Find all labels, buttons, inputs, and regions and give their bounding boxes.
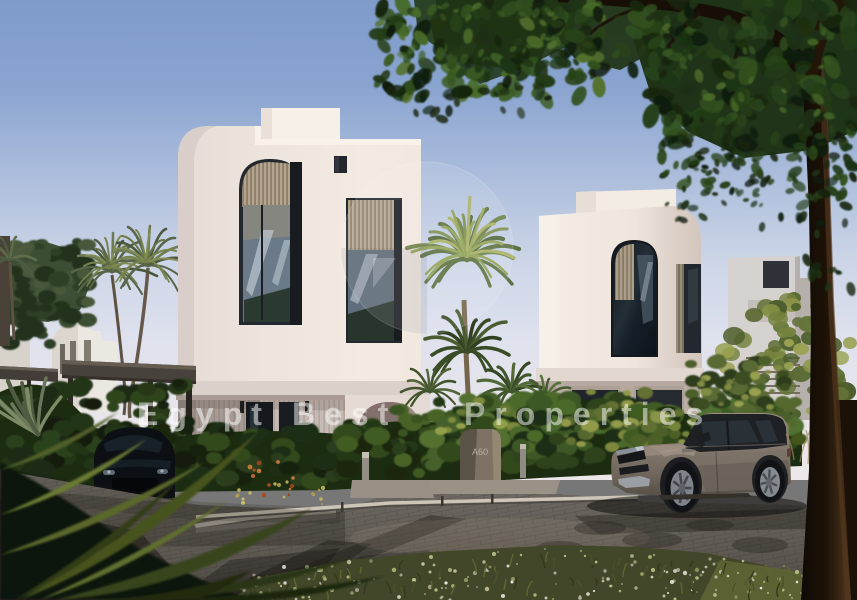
svg-text:A60: A60 — [472, 447, 488, 457]
